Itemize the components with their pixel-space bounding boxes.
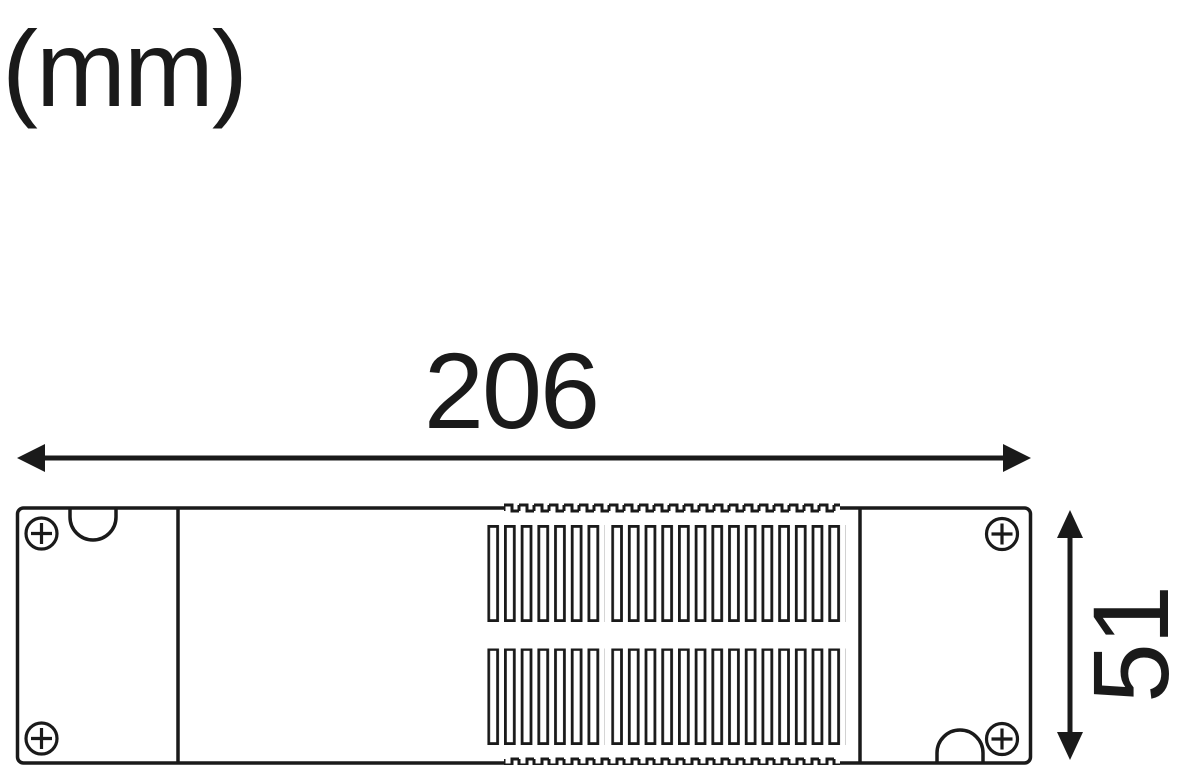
- screw-icon: [26, 723, 57, 754]
- vent-slots-top-left-group: [487, 525, 604, 623]
- height-dimension-value: 51: [1070, 587, 1191, 703]
- height-dimension: 51: [1057, 510, 1191, 760]
- screw-icon: [987, 519, 1018, 550]
- left-arrowhead-icon: [17, 444, 45, 472]
- vent-slots-top-right-group: [611, 525, 845, 623]
- down-arrowhead-icon: [1057, 732, 1083, 760]
- unit-label: (mm): [2, 8, 246, 129]
- screw-icon: [26, 518, 57, 549]
- bottom-crenellated-edge: [504, 758, 840, 765]
- top-crenellated-edge: [504, 504, 840, 513]
- width-dimension: 206: [17, 330, 1031, 472]
- width-dimension-value: 206: [424, 330, 598, 451]
- vent-slots-bottom-right-group: [611, 648, 845, 746]
- device-top-view: [18, 504, 1031, 765]
- drawing-canvas: (mm) 206 51: [0, 0, 1200, 765]
- right-arrowhead-icon: [1003, 444, 1031, 472]
- technical-drawing-page: (mm) 206 51: [0, 0, 1200, 765]
- vent-slots-bottom-left-group: [487, 648, 604, 746]
- screw-icon: [987, 724, 1018, 755]
- up-arrowhead-icon: [1057, 510, 1083, 538]
